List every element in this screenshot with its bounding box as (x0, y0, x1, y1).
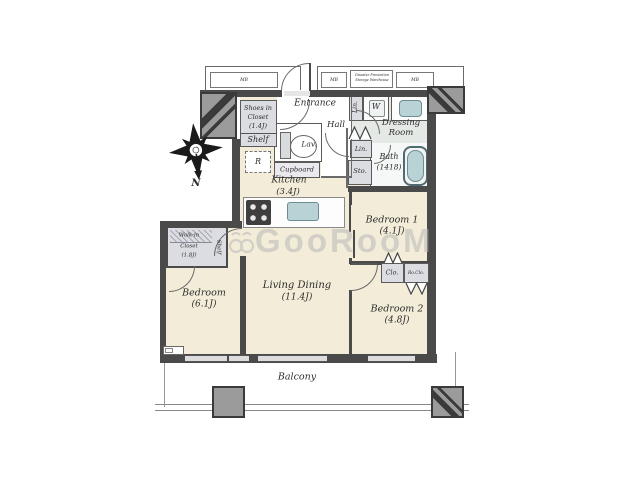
pillar-top-right (427, 86, 465, 114)
shoes-closet-line3: (1.4J) (249, 124, 267, 130)
bedroom2-size-label: (4.8J) (385, 317, 410, 326)
wall-living-col-c (349, 290, 352, 356)
bedroom1-name-label: Bedroom 1 (366, 215, 419, 225)
walkin-closet-line2: Closet (180, 243, 197, 248)
window-living (258, 355, 327, 362)
walkin-closet-line3: (1.8J) (181, 252, 196, 257)
shoes-closet-line2: Closet (248, 115, 269, 121)
bifold-door-hall-icon (348, 126, 372, 140)
window-bedroom-main (185, 355, 227, 362)
walkin-closet-line1: Walk-in (179, 232, 199, 237)
cupboard-label: Cupboard (280, 167, 314, 174)
living-name-label: Living Dining (263, 281, 331, 291)
basin-sink (399, 100, 422, 117)
wall-bedmain-right (240, 256, 246, 356)
entrance-threshold (284, 91, 310, 96)
washer-label: W (372, 103, 380, 111)
storage-warehouse-line1: Disaster Prevention (355, 73, 389, 76)
walkin-closet-shelf-label: Shelf (216, 240, 222, 255)
storage-warehouse-line2: Storage Warehouse (355, 78, 388, 81)
bathtub-inner (407, 150, 424, 182)
wall-left-lower (160, 228, 166, 362)
closet-label: Clo. (386, 270, 399, 276)
corridor-line-left (205, 66, 301, 67)
living-size-label: (11.4J) (282, 294, 313, 303)
window-small (229, 355, 249, 362)
linen-upper-label: Lin. (353, 101, 359, 113)
bifold-door-closet-top-icon (383, 252, 403, 264)
sliding-door-panel-1 (349, 204, 351, 232)
vent-box-inner (165, 348, 173, 353)
lavatory-label: Lav. (301, 140, 316, 148)
pillar-balcony-left (212, 386, 245, 418)
wall-bath-bottom (348, 186, 428, 192)
pillar-balcony-right (431, 386, 464, 418)
hall-label: Hall (327, 121, 345, 130)
wall-left-upper (232, 139, 240, 225)
bifold-door-closet-bottom-icon (405, 282, 428, 295)
meter-box-mid-label: MB (330, 78, 338, 82)
kitchen-size-label: (3.4J) (276, 188, 300, 197)
corridor-line-right (317, 66, 464, 67)
storage-label: Sto. (353, 169, 366, 176)
entrance-label: Entrance (294, 100, 336, 109)
linen-lower-label: Lin. (355, 147, 367, 153)
balcony-label: Balcony (278, 372, 316, 382)
shoes-closet-shelf-label: Shelf (248, 136, 269, 144)
meter-box-right-label: MB (411, 78, 419, 82)
dressing-line2: Room (389, 129, 414, 138)
window-bedroom2 (368, 355, 415, 362)
wall-right (427, 107, 436, 356)
stove (246, 200, 271, 225)
meter-box-left-label: MB (240, 78, 248, 82)
kitchen-sink (287, 202, 319, 221)
bedroom-main-name-label: Bedroom (182, 288, 226, 298)
closet-small-label: Ro.Clo. (408, 271, 424, 275)
compass-rose-icon (164, 118, 230, 184)
corridor-tick-1 (205, 66, 206, 90)
corridor-tick-3 (317, 66, 318, 90)
entrance-door-leaf (309, 63, 311, 91)
wall-step (160, 221, 242, 228)
bath-size-label: (1418) (377, 163, 402, 171)
balcony-rail-outer (155, 404, 469, 405)
dressing-line1: Dressing (382, 119, 420, 128)
floor-plan: MB MB MB Disaster Prevention Storage War… (0, 0, 640, 480)
compass-north-label: N (191, 179, 200, 189)
entrance-door-arc (281, 63, 309, 91)
refrigerator-label: R (255, 158, 261, 166)
balcony-rail-inner (155, 410, 469, 411)
bath-name-label: Bath (379, 153, 398, 161)
shoes-closet-line1: Shoes in (244, 106, 272, 112)
bedroom2-name-label: Bedroom 2 (371, 304, 424, 314)
bedroom-main-size-label: (6.1J) (192, 301, 217, 310)
bedroom2-door-leaf (351, 263, 378, 265)
bedroom1-size-label: (4.1J) (380, 228, 405, 237)
kitchen-name-label: Kitchen (271, 177, 306, 186)
sliding-door-panel-2 (353, 230, 355, 258)
